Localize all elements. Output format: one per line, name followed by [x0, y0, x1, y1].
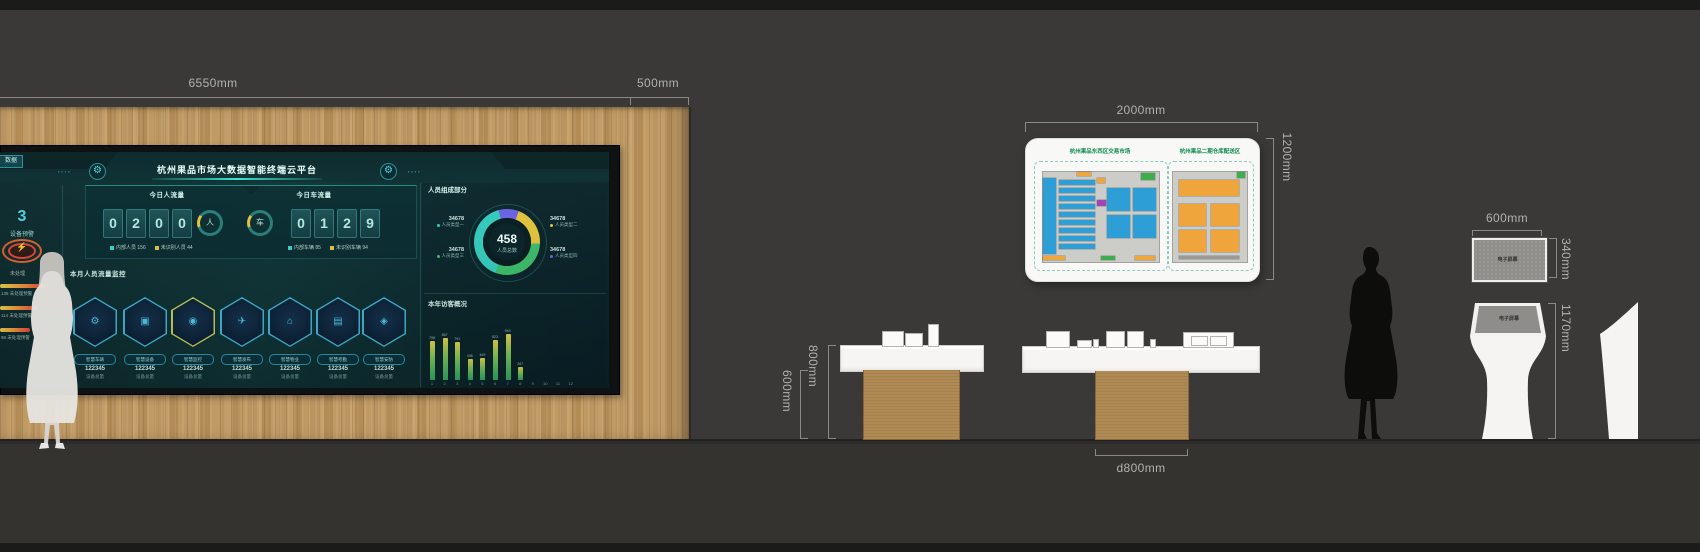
- dimension-tick: [1266, 138, 1274, 139]
- floorplan-block: [1059, 188, 1095, 193]
- figure-dress: [26, 271, 77, 423]
- module-value: 122345: [123, 366, 167, 372]
- model-window: [1210, 336, 1227, 346]
- dimension-label-kiosk-height: 1170mm: [1559, 304, 1573, 348]
- counter-digit: 0: [149, 209, 169, 238]
- wall-mounted-screen: 电子屏幕: [1472, 238, 1547, 282]
- floorplan-block: [1135, 256, 1155, 260]
- floor-area: [0, 444, 1700, 543]
- legend-text: 未识别人员 44: [161, 244, 193, 251]
- floorplan-block: [1237, 172, 1245, 178]
- composition-name: 人员类型一: [418, 222, 464, 228]
- top-letterbox-bar: [0, 0, 1700, 10]
- module-value: 122345: [316, 366, 360, 372]
- module-unit: 设备总量: [171, 374, 215, 380]
- floorplan-block: [1077, 172, 1091, 176]
- dashboard-title: 杭州果品市场大数据智能终端云平台: [127, 163, 347, 176]
- scale-model-block: [905, 333, 923, 347]
- dimension-tick: [1541, 230, 1542, 236]
- display-table-1-top: [840, 345, 984, 372]
- floorplan-block: [1059, 196, 1095, 201]
- counter-digit: 2: [337, 209, 357, 238]
- dimension-tick: [1549, 277, 1557, 278]
- bar-month-label: 1: [427, 381, 437, 386]
- floorplan-title-east-west: 杭州果品东西区交易市场: [1034, 147, 1166, 155]
- bar-month-label: 10: [540, 381, 550, 386]
- composition-name: 人员类型三: [418, 253, 464, 259]
- legend-swatch: [155, 246, 159, 250]
- floorplan-graphic-phase2: [1172, 171, 1248, 263]
- floorplan-block: [1107, 215, 1130, 238]
- floorplan-block: [1059, 220, 1095, 225]
- people-legend: 内部人员 156未识别人员 44: [110, 244, 193, 251]
- bar-month-label: 9: [528, 381, 538, 386]
- visitors-chart-title: 本年访客概况: [428, 298, 538, 308]
- dimension-tick: [1472, 230, 1473, 236]
- bar-month-label: 4: [465, 381, 475, 386]
- dimension-tick: [1257, 122, 1258, 132]
- header-wing-right: [491, 152, 609, 169]
- bottom-letterbox-bar: [0, 543, 1700, 552]
- module-label: 智慧物业: [269, 354, 311, 365]
- dimension-line-kiosk-height: [1555, 303, 1556, 439]
- bar-month-label: 12: [566, 381, 576, 386]
- floorplan-block: [1133, 215, 1156, 238]
- figure-silhouette: [1345, 247, 1398, 439]
- visitor-bar-value: 436: [462, 354, 478, 358]
- floorplan-block: [1059, 228, 1095, 233]
- hexagon-frame: ◉: [171, 297, 215, 347]
- module-unit: 设备总量: [220, 374, 264, 380]
- legend-text: 未识别车辆 94: [336, 244, 368, 251]
- counter-digit: 9: [360, 209, 380, 238]
- floorplan-block: [1179, 204, 1206, 226]
- counter-digit: 0: [291, 209, 311, 238]
- floorplan-block: [1179, 256, 1239, 259]
- counter-digit: 1: [314, 209, 334, 238]
- floorplan-block: [1107, 188, 1130, 211]
- dimension-tick: [800, 438, 808, 439]
- box-icon: ▣: [123, 297, 167, 347]
- scale-model-block: [1150, 339, 1156, 348]
- hexagon-fill: [75, 299, 116, 346]
- dimension-label-table-depth: d800mm: [1101, 461, 1181, 475]
- dimension-tick: [1548, 303, 1556, 304]
- smart-module: ✈智慧发布122345设备总量: [220, 297, 264, 388]
- composition-value: 34678: [550, 247, 596, 253]
- floorplan-block: [1097, 178, 1105, 183]
- composition-label: 34678人员类型一: [418, 216, 464, 236]
- wall-screen-label: 电子屏幕: [1474, 256, 1541, 263]
- right-panel: [422, 183, 606, 388]
- scale-model-block: [1183, 332, 1234, 348]
- visitor-bar: [518, 367, 523, 380]
- dimension-label-board-height: 1200mm: [1280, 132, 1294, 182]
- composition-dot: [550, 224, 553, 227]
- counter-digit: 0: [103, 209, 123, 238]
- composition-dot: [550, 255, 553, 258]
- bar-month-label: 11: [553, 381, 563, 386]
- floorplan-block: [1097, 200, 1106, 206]
- visitor-bar: [493, 340, 498, 380]
- scale-model-block: [1127, 331, 1144, 348]
- legend-swatch: [110, 246, 114, 250]
- vehicle-counter-title: 今日车流量: [274, 189, 354, 199]
- hexagon-fill: [270, 299, 311, 346]
- hexagon-frame: ⚙: [73, 297, 117, 347]
- module-value: 122345: [362, 366, 406, 372]
- gear-icon: ⚙: [89, 163, 106, 180]
- shield-icon: ◈: [362, 297, 406, 347]
- model-window: [1191, 336, 1208, 346]
- dimension-tick: [630, 97, 631, 105]
- legend-swatch: [330, 246, 334, 250]
- dimension-line-table-height: [828, 345, 829, 439]
- dimension-label-table-height: 800mm: [806, 344, 820, 388]
- vehicle-legend: 内部车辆 85未识别车辆 94: [288, 244, 368, 251]
- bar-month-label: 3: [452, 381, 462, 386]
- today-counters-panel: 今日人流量 今日车流量 0200 人 车 0129 内部人员 156未识别人员 …: [85, 185, 417, 259]
- composition-label: 34678人员类型四: [550, 247, 596, 267]
- visitor-bar-value: 791: [449, 337, 465, 341]
- floorplan-block: [1043, 178, 1056, 254]
- visitor-bar-value: 823: [487, 335, 503, 339]
- floorplan-block: [1179, 180, 1239, 196]
- kiosk-side-view: [1595, 300, 1643, 442]
- display-table-2-leg: [1095, 371, 1189, 440]
- dimension-label-wall-side: 500mm: [613, 76, 703, 90]
- alert-count: 3: [10, 208, 34, 226]
- module-label: 智慧发布: [221, 354, 263, 365]
- title-underline: [152, 178, 322, 180]
- floorplan-block: [1141, 173, 1155, 180]
- dimension-tick: [1266, 279, 1274, 280]
- gear-icon: ⚙: [380, 163, 397, 180]
- divider: [424, 293, 606, 294]
- floorplan-block: [1059, 204, 1095, 209]
- composition-title: 人员组成部分: [428, 184, 538, 194]
- visitor-bar-value: 867: [437, 333, 453, 337]
- smart-module: ⌂智慧物业122345设备总量: [268, 297, 312, 388]
- module-label: 智慧考勤: [317, 354, 359, 365]
- hexagon-frame: ✈: [220, 297, 264, 347]
- alert-label: 设备预警: [2, 229, 42, 238]
- legend-item: 未识别人员 44: [155, 244, 193, 251]
- dimension-line-board-width: [1025, 122, 1258, 123]
- hexagon-frame: ⌂: [268, 297, 312, 347]
- dimension-tick: [828, 438, 836, 439]
- dimension-label-screen-height: 340mm: [1559, 237, 1573, 281]
- people-counter-title: 今日人流量: [127, 189, 207, 199]
- floorplan-block: [1179, 230, 1206, 252]
- bar-month-label: 8: [515, 381, 525, 386]
- floorplan-block: [1059, 244, 1095, 249]
- visitor-bar-value: 949: [500, 329, 516, 333]
- hexagon-fill: [125, 299, 166, 346]
- module-label: 智慧车辆: [74, 354, 116, 365]
- composition-dot: [437, 224, 440, 227]
- legend-item: 内部车辆 85: [288, 244, 321, 251]
- module-label: 智慧监控: [172, 354, 214, 365]
- composition-name: 人员类型二: [550, 222, 596, 228]
- dimension-line-board-height: [1273, 138, 1274, 280]
- bar-month-label: 5: [477, 381, 487, 386]
- vehicle-ring-icon: 车: [247, 210, 273, 236]
- hexagon-fill: [364, 299, 405, 346]
- people-ring-icon: 人: [197, 210, 223, 236]
- scale-figure-left: [26, 251, 78, 453]
- decorative-dashes: ▪▪▪▪: [58, 169, 72, 174]
- dimension-tick: [1095, 449, 1096, 455]
- display-table-1-leg: [863, 370, 960, 440]
- visitor-bar: [455, 342, 460, 380]
- visitor-bar-value: 798: [424, 336, 440, 340]
- dashboard-screen: 杭州果品市场大数据智能终端云平台 ⚙ ⚙ ▪▪▪▪ ▪▪▪▪ 数据 3 设备预警…: [0, 152, 609, 388]
- visitor-bar: [506, 334, 511, 380]
- bar-month-label: 7: [503, 381, 513, 386]
- dimension-tick: [800, 370, 808, 371]
- kiosk-screen-label: 电子屏幕: [1486, 315, 1532, 322]
- legend-text: 内部车辆 85: [294, 244, 321, 251]
- scale-model-block: [928, 324, 939, 347]
- composition-label: 34678人员类型二: [550, 216, 596, 236]
- module-label: 智慧安防: [363, 354, 405, 365]
- monitor-section-title: 本月人员流量监控: [70, 268, 220, 278]
- smart-module: ▣智慧设备122345设备总量: [123, 297, 167, 388]
- counter-digit: 0: [172, 209, 192, 238]
- hexagon-fill: [173, 299, 214, 346]
- dimension-line-screen-height: [1556, 238, 1557, 278]
- composition-name: 人员类型四: [550, 253, 596, 259]
- smart-module: ⚙智慧车辆122345设备总量: [73, 297, 117, 388]
- bar-month-label: 2: [440, 381, 450, 386]
- visitor-bar: [480, 358, 485, 380]
- document-icon: ▤: [316, 297, 360, 347]
- display-table-2-top: [1022, 346, 1260, 373]
- dimension-tick: [1549, 238, 1557, 239]
- visitor-bar-value: 449: [474, 353, 490, 357]
- module-unit: 设备总量: [316, 374, 360, 380]
- smart-module: ◈智慧安防122345设备总量: [362, 297, 406, 388]
- module-label: 智慧设备: [124, 354, 166, 365]
- floorplan-title-phase2: 杭州果品二期仓库配送区: [1168, 147, 1252, 155]
- floorplan-block: [1133, 188, 1156, 211]
- floorplan-block: [1211, 230, 1239, 252]
- visitor-bar: [443, 338, 448, 380]
- module-unit: 设备总量: [123, 374, 167, 380]
- dimension-label-screen-width: 600mm: [1467, 211, 1547, 225]
- composition-type-label: 人员类型四: [555, 253, 578, 259]
- floorplan-block: [1211, 204, 1239, 226]
- smart-module: ▤智慧考勤122345设备总量: [316, 297, 360, 388]
- module-unit: 设备总量: [268, 374, 312, 380]
- module-unit: 设备总量: [362, 374, 406, 380]
- composition-type-label: 人员类型三: [442, 253, 465, 259]
- smart-module: ◉智慧监控122345设备总量: [171, 297, 215, 388]
- legend-item: 未识别车辆 94: [330, 244, 368, 251]
- floorplan-block: [1059, 212, 1095, 217]
- donut-total-label: 人员总数: [474, 247, 540, 254]
- donut-total: 458: [474, 232, 540, 246]
- dimension-tick: [1548, 438, 1556, 439]
- hexagon-frame: ▣: [123, 297, 167, 347]
- composition-value: 34678: [418, 247, 464, 253]
- hexagon-fill: [222, 299, 263, 346]
- floorplan-block: [1059, 236, 1095, 241]
- composition-type-label: 人员类型一: [442, 222, 465, 228]
- scale-model-block: [1093, 339, 1099, 348]
- composition-dot: [437, 255, 440, 258]
- dimension-tick: [1025, 122, 1026, 132]
- scale-figure-right: [1339, 247, 1401, 445]
- dimension-line-table-depth: [1095, 455, 1188, 456]
- dimension-label-wall-width: 6550mm: [153, 76, 273, 90]
- hexagon-fill: [318, 299, 359, 346]
- composition-label: 34678人员类型三: [418, 247, 464, 267]
- module-value: 122345: [73, 366, 117, 372]
- visitor-bar-value: 267: [512, 362, 528, 366]
- scale-model-block: [1106, 331, 1125, 348]
- scale-model-block: [1077, 340, 1092, 348]
- composition-value: 34678: [418, 216, 464, 222]
- building-icon: ⌂: [268, 297, 312, 347]
- legend-text: 内部人员 156: [116, 244, 146, 251]
- dimension-tick: [828, 345, 836, 346]
- floorplan-block: [1043, 256, 1065, 260]
- scale-model-block: [882, 331, 904, 347]
- dimension-line-screen-width: [1472, 230, 1542, 231]
- figure-shoes: [39, 443, 65, 449]
- dimension-line-leg-height: [800, 370, 801, 439]
- decorative-dashes: ▪▪▪▪: [408, 169, 422, 174]
- scale-model-block: [1046, 331, 1070, 348]
- hanging-floorplan-board: 杭州果品东西区交易市场 杭州果品二期仓库配送区: [1025, 138, 1260, 282]
- legend-item: 内部人员 156: [110, 244, 146, 251]
- elevation-drawing: 杭州果品市场大数据智能终端云平台 ⚙ ⚙ ▪▪▪▪ ▪▪▪▪ 数据 3 设备预警…: [0, 0, 1700, 552]
- module-unit: 设备总量: [73, 374, 117, 380]
- visitor-bar: [468, 359, 473, 380]
- module-value: 122345: [220, 366, 264, 372]
- module-value: 122345: [171, 366, 215, 372]
- counter-digit: 2: [126, 209, 146, 238]
- kiosk-side-shape: [1600, 302, 1638, 439]
- visitor-bar: [430, 341, 435, 380]
- module-value: 122345: [268, 366, 312, 372]
- tab-data: 数据: [0, 155, 23, 168]
- divider: [420, 183, 421, 387]
- hexagon-frame: ▤: [316, 297, 360, 347]
- floorplan-block: [1059, 180, 1095, 185]
- composition-type-label: 人员类型二: [555, 222, 578, 228]
- legend-swatch: [288, 246, 292, 250]
- bar-month-label: 6: [490, 381, 500, 386]
- figure-legs: [44, 423, 60, 443]
- composition-value: 34678: [550, 216, 596, 222]
- kiosk-body: [1470, 336, 1546, 439]
- floorplan-block: [1101, 256, 1115, 260]
- dimension-tick: [1187, 449, 1188, 455]
- hexagon-frame: ◈: [362, 297, 406, 347]
- floorplan-graphic-east-west: [1042, 171, 1160, 263]
- camera-icon: ◉: [171, 297, 215, 347]
- dimension-label-leg-height: 600mm: [780, 369, 794, 413]
- car-icon: ⚙: [73, 297, 117, 347]
- send-icon: ✈: [220, 297, 264, 347]
- dimension-line-wall: [0, 97, 689, 98]
- dimension-tick: [688, 97, 689, 105]
- dimension-label-board-width: 2000mm: [1091, 103, 1191, 117]
